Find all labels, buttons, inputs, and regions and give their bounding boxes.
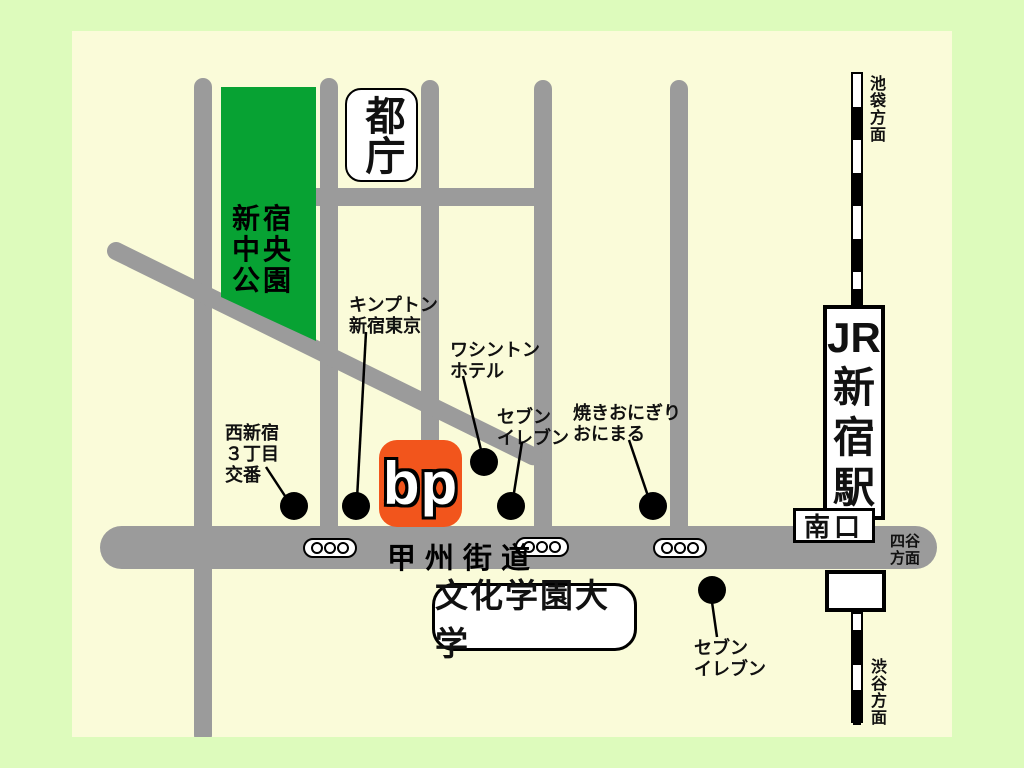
south-exit-box: 南口 <box>793 508 875 543</box>
leader-lines <box>72 31 952 737</box>
map-area: 新宿 中央 公園 都庁 池袋方面 渋谷方面 JR 新 宿 駅 <box>72 31 952 737</box>
bp-logo: bp <box>379 440 462 527</box>
koshu-kaido-label: 甲州街道 <box>387 535 539 577</box>
station-lower-box <box>825 570 886 612</box>
access-map: 新宿 中央 公園 都庁 池袋方面 渋谷方面 JR 新 宿 駅 <box>0 0 1024 768</box>
direction-yotsuya: 四谷 方面 <box>890 533 920 567</box>
jr-shinjuku-station: JR 新 宿 駅 <box>823 305 885 520</box>
